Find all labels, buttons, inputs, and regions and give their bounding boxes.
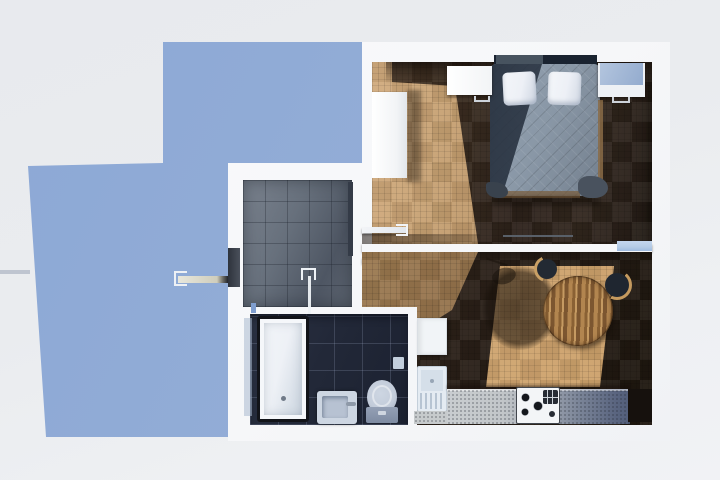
nightstand-left-handle — [474, 96, 490, 102]
nightstand-right-glass-top — [600, 63, 643, 85]
floor-plan-render — [0, 0, 720, 480]
sink-basin — [322, 396, 348, 418]
bathroom-wall-glow — [244, 318, 252, 416]
bedroom-door-handle — [396, 224, 408, 236]
entry-door-handle — [174, 271, 187, 286]
radiator-slats — [420, 393, 444, 409]
washing-machine — [417, 318, 447, 355]
entry-doorway — [228, 248, 240, 287]
door-shadow-line — [0, 270, 30, 274]
stove-knob — [549, 411, 555, 417]
bed-foot-shadow — [492, 197, 600, 206]
bathtub-drain — [281, 396, 286, 401]
bedroom-door-shadow — [362, 234, 480, 244]
partition-wall — [362, 244, 652, 252]
shower-door — [308, 276, 311, 314]
bathtub — [257, 316, 309, 422]
toilet-tank — [366, 407, 398, 423]
stove-burner-3 — [533, 401, 543, 411]
pillow-left — [502, 71, 537, 106]
stove-burner-2 — [521, 408, 529, 416]
nightstand-left — [447, 66, 492, 95]
dark-floor-east — [628, 389, 652, 422]
stove-burner-1 — [521, 393, 530, 402]
radiator-dot — [430, 379, 434, 383]
chair-right-seat — [605, 273, 629, 297]
entry-hall-floor — [243, 180, 352, 307]
chair-upper-seat — [537, 259, 557, 279]
stove-grate — [543, 390, 558, 404]
bed-headboard-shelf — [496, 55, 543, 64]
wardrobe — [372, 92, 407, 178]
pillow-right — [547, 71, 581, 105]
toilet-paper-holder — [393, 357, 404, 369]
sink-faucet — [346, 402, 356, 406]
glass-panel — [617, 241, 652, 251]
toilet-flush-button — [378, 411, 386, 415]
throw-blanket — [578, 176, 608, 198]
shower-door-handle — [301, 268, 316, 280]
wardrobe-shadow — [407, 90, 421, 182]
towel — [251, 303, 256, 313]
baseboard-line — [503, 235, 573, 237]
hall-glass-edge — [348, 182, 353, 256]
kitchen-counter-west — [414, 411, 447, 424]
nightstand-right-handle — [612, 97, 630, 103]
toilet-seat-ring — [372, 385, 392, 407]
